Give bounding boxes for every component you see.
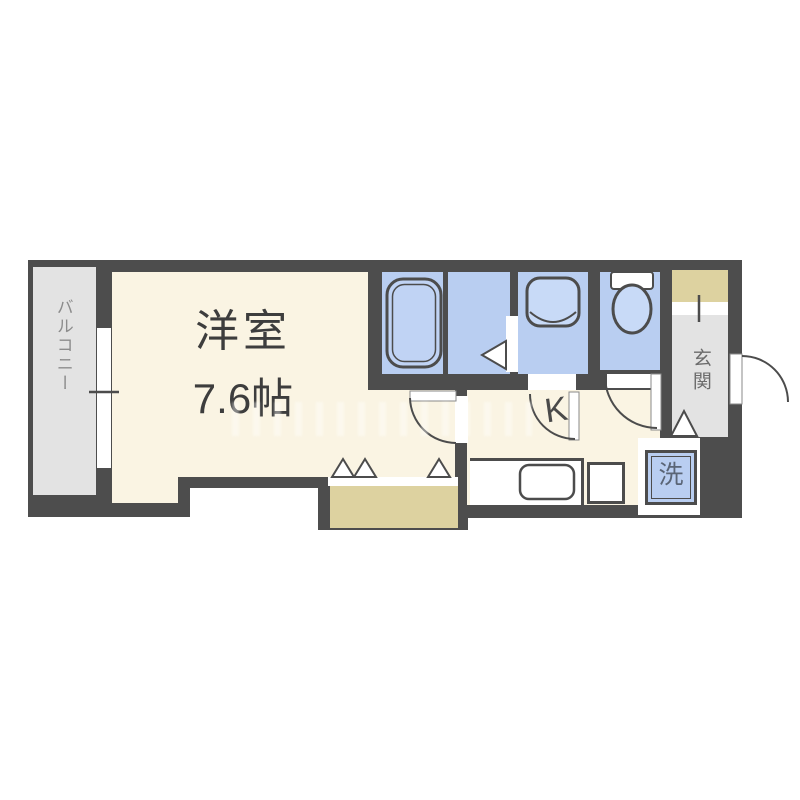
washbasin-sink-icon bbox=[527, 278, 579, 326]
entry-door-arc bbox=[742, 356, 788, 402]
washbasin-door-leaf bbox=[569, 392, 579, 440]
bathtub-icon bbox=[387, 279, 441, 367]
entry-door-leaf bbox=[730, 354, 742, 404]
entrance-label: 玄関 bbox=[689, 348, 710, 418]
closet-folding-door-icon bbox=[354, 459, 376, 477]
toilet-door-arc bbox=[605, 376, 657, 428]
kitchen-sink-icon bbox=[520, 465, 574, 499]
bathroom-folding-door-icon bbox=[482, 341, 506, 369]
floorplan-canvas: 洋室 7.6帖 バルコニー 玄関 K 洗 bbox=[0, 0, 800, 800]
balcony-label: バルコニー bbox=[53, 298, 72, 478]
watermark bbox=[232, 402, 532, 436]
symbols-overlay bbox=[0, 0, 800, 800]
toilet-bowl-icon bbox=[613, 285, 651, 333]
main-room-name-label: 洋室 bbox=[168, 308, 318, 356]
toilet-door-leaf bbox=[651, 374, 661, 430]
closet-folding-door-icon bbox=[428, 459, 450, 477]
main-room-door-leaf bbox=[410, 391, 456, 401]
washer-label: 洗 bbox=[645, 462, 697, 490]
closet-folding-door-icon bbox=[332, 459, 354, 477]
kitchen-label: K bbox=[543, 391, 571, 431]
